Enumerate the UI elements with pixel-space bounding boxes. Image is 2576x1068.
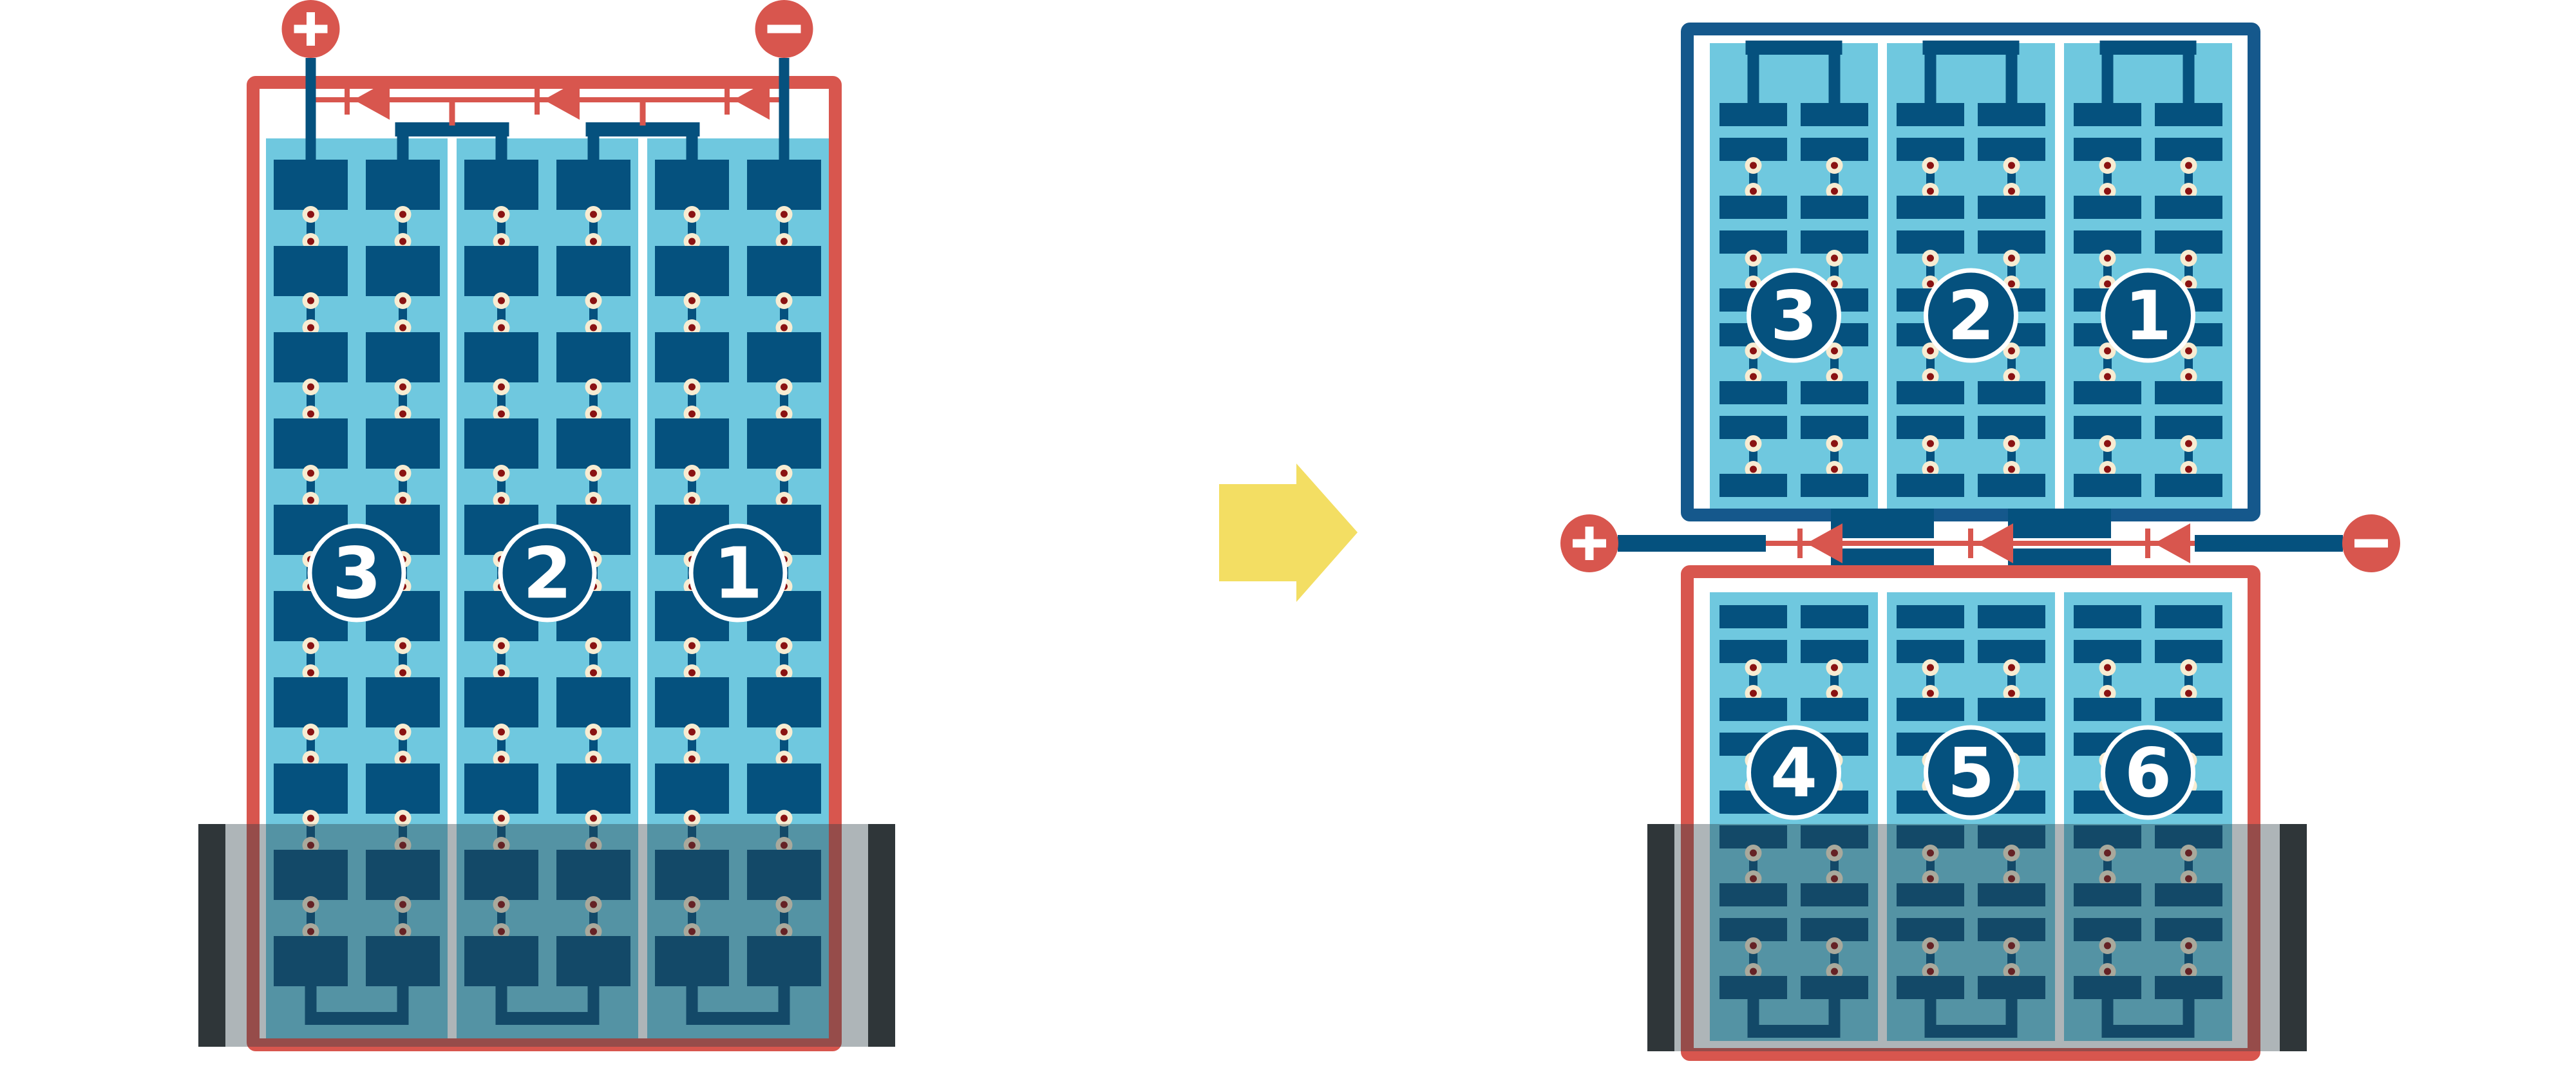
string-number-label: 5 (1947, 734, 1994, 812)
cell (1897, 474, 1964, 497)
joint-dot-core (2008, 348, 2015, 355)
joint-dot-core (2104, 690, 2111, 697)
top-u-connector-bar (1923, 41, 2020, 55)
string-number-label: 4 (1770, 734, 1817, 812)
joint-dot-core (1750, 690, 1757, 697)
flood-group (198, 824, 2307, 1051)
joint-dot-core (498, 411, 505, 418)
joint-dot-core (2185, 373, 2192, 380)
joint-dot-core (688, 756, 696, 763)
string-number-label: 6 (2125, 734, 2172, 812)
cell (464, 677, 538, 727)
transform-arrow-icon (1219, 464, 1358, 602)
cell (747, 246, 821, 296)
joint-dot-core (781, 815, 788, 822)
cell (366, 764, 440, 814)
minus-terminal-icon (2342, 514, 2400, 572)
string-number-label: 1 (2125, 277, 2172, 355)
joint-dot-core (688, 411, 696, 418)
string-rewiring-diagram: 321321456 (0, 0, 2576, 1068)
joint-dot-core (1927, 188, 1934, 195)
cell (1801, 698, 1868, 721)
joint-dot-core (781, 470, 788, 477)
joint-dot-core (1927, 348, 1934, 355)
terminal-post (306, 58, 316, 161)
top-u-connector-leg (1748, 55, 1759, 111)
joint-dot-core (590, 756, 597, 763)
cell (366, 418, 440, 469)
cell (1801, 605, 1868, 628)
top-u-connector-bar (2100, 41, 2197, 55)
joint-dot-core (2185, 255, 2192, 262)
string-number-label: 3 (332, 532, 382, 615)
cell (1719, 605, 1787, 628)
minus-glyph-bar (2354, 539, 2388, 548)
joint-dot-core (590, 297, 597, 304)
wire-tick (535, 85, 540, 115)
cell (464, 332, 538, 382)
joint-dot-core (399, 384, 406, 391)
joint-dot-core (781, 411, 788, 418)
joint-dot-core (1831, 188, 1838, 195)
joint-dot-core (688, 729, 696, 736)
cell (1978, 196, 2045, 219)
joint-dot-core (307, 815, 314, 822)
joint-dot-core (399, 324, 406, 332)
joint-dot-core (307, 642, 314, 650)
joint-dot-core (781, 497, 788, 504)
cell (556, 160, 630, 210)
cell (464, 246, 538, 296)
joint-dot-core (590, 324, 597, 332)
joint-dot-core (2008, 281, 2015, 288)
cell (2155, 196, 2222, 219)
joint-dot-core (1927, 664, 1934, 671)
joint-dot-core (1927, 466, 1934, 473)
cell (1978, 605, 2045, 628)
cell (2074, 605, 2141, 628)
joint-dot-core (590, 411, 597, 418)
string-number-label: 1 (714, 532, 763, 615)
joint-dot-core (781, 670, 788, 677)
joint-dot-core (1831, 162, 1838, 169)
joint-dot-core (307, 297, 314, 304)
joint-dot-core (688, 670, 696, 677)
series-tab-bottom (2008, 548, 2111, 565)
joint-dot-core (1831, 281, 1838, 288)
joint-dot-core (2104, 664, 2111, 671)
flood-water-overlay-right (1647, 824, 2307, 1051)
cell (2074, 381, 2141, 404)
joint-dot-core (498, 324, 505, 332)
cell (274, 677, 348, 727)
joint-dot-core (2104, 255, 2111, 262)
cell (1719, 196, 1787, 219)
joint-dot-core (688, 470, 696, 477)
joint-dot-core (498, 384, 505, 391)
joint-dot-core (1927, 690, 1934, 697)
joint-dot-core (1831, 373, 1838, 380)
joint-dot-core (2104, 281, 2111, 288)
cell (1719, 698, 1787, 721)
joint-dot-core (590, 384, 597, 391)
joint-dot-core (1831, 348, 1838, 355)
joint-dot-core (498, 211, 505, 218)
cell (464, 160, 538, 210)
joint-dot-core (688, 324, 696, 332)
top-u-connector-leg (1925, 55, 1937, 111)
cell (1801, 474, 1868, 497)
top-u-connector-leg (2006, 55, 2018, 111)
cell (274, 418, 348, 469)
joint-dot-core (781, 211, 788, 218)
column-divider (1878, 43, 1887, 509)
cell (747, 764, 821, 814)
joint-dot-core (688, 642, 696, 650)
joint-dot-core (2104, 348, 2111, 355)
joint-dot-core (307, 497, 314, 504)
cell (655, 418, 729, 469)
cell (366, 677, 440, 727)
joint-dot-core (2185, 281, 2192, 288)
current-direction-arrowhead (1977, 523, 2013, 563)
joint-dot-core (781, 642, 788, 650)
series-tab-bottom (1831, 548, 1934, 565)
joint-dot-core (1927, 281, 1934, 288)
joint-dot-core (2185, 690, 2192, 697)
cell (2074, 196, 2141, 219)
joint-dot-core (781, 238, 788, 245)
joint-dot-core (307, 670, 314, 677)
joint-dot-core (1750, 348, 1757, 355)
joint-dot-core (1750, 440, 1757, 447)
wire-stub (450, 100, 455, 126)
wire-stub (640, 100, 646, 126)
joint-dot-core (399, 297, 406, 304)
cell (274, 160, 348, 210)
joint-dot-core (307, 729, 314, 736)
cell (1897, 196, 1964, 219)
joint-dot-core (2185, 440, 2192, 447)
joint-dot-core (781, 729, 788, 736)
joint-dot-core (399, 815, 406, 822)
joint-dot-core (688, 238, 696, 245)
joint-dot-core (399, 238, 406, 245)
top-u-connector-bar (1746, 41, 1842, 55)
joint-dot-core (1750, 373, 1757, 380)
wire-tick (2145, 529, 2150, 558)
cell (556, 677, 630, 727)
cell (1978, 381, 2045, 404)
cell (747, 160, 821, 210)
cell (556, 418, 630, 469)
joint-dot-core (590, 729, 597, 736)
joint-dot-core (1750, 255, 1757, 262)
right-top-panel-group: 321 (1687, 29, 2254, 515)
plus-glyph-bar (307, 12, 315, 46)
top-series-bridge-leg (588, 136, 600, 162)
cell (1719, 474, 1787, 497)
cell (556, 332, 630, 382)
joint-dot-core (1927, 162, 1934, 169)
cell (464, 764, 538, 814)
joint-dot-core (399, 756, 406, 763)
cell (274, 764, 348, 814)
joint-dot-core (688, 211, 696, 218)
cell (2155, 698, 2222, 721)
joint-dot-core (399, 729, 406, 736)
cell (655, 246, 729, 296)
joint-dot-core (781, 324, 788, 332)
joint-dot-core (1831, 255, 1838, 262)
flood-water-overlay-left (198, 824, 895, 1047)
cell (1801, 196, 1868, 219)
joint-dot-core (399, 411, 406, 418)
joint-dot-core (2008, 664, 2015, 671)
joint-dot-core (307, 211, 314, 218)
string-number-label: 2 (1947, 277, 1994, 355)
top-u-connector-leg (2183, 55, 2195, 111)
top-u-connector-leg (1829, 55, 1841, 111)
joint-dot-core (1750, 281, 1757, 288)
joint-dot-core (307, 470, 314, 477)
joint-dot-core (307, 324, 314, 332)
joint-dot-core (2185, 188, 2192, 195)
diagram-canvas: 321321456 (0, 0, 2576, 1068)
joint-dot-core (307, 384, 314, 391)
terminal-post (779, 58, 790, 161)
top-u-connector-leg (2102, 55, 2114, 111)
joint-dot-core (781, 384, 788, 391)
cell (747, 332, 821, 382)
joint-dot-core (2104, 188, 2111, 195)
plus-glyph-bar (1586, 527, 1594, 560)
top-series-bridge-leg (397, 136, 409, 162)
string-number-label: 3 (1770, 277, 1817, 355)
joint-dot-core (498, 756, 505, 763)
cell (556, 764, 630, 814)
joint-dot-core (498, 238, 505, 245)
joint-dot-core (590, 497, 597, 504)
cell (1978, 474, 2045, 497)
joint-dot-core (781, 297, 788, 304)
cell (1801, 381, 1868, 404)
terminal-bus-bar (2195, 535, 2343, 552)
joint-dot-core (1927, 373, 1934, 380)
joint-dot-core (498, 670, 505, 677)
cell (747, 677, 821, 727)
joint-dot-core (399, 497, 406, 504)
joint-dot-core (498, 497, 505, 504)
cell (556, 246, 630, 296)
joint-dot-core (307, 238, 314, 245)
joint-dot-core (2008, 162, 2015, 169)
joint-dot-core (1831, 690, 1838, 697)
joint-dot-core (2008, 373, 2015, 380)
series-tab-top (1831, 509, 1934, 538)
wire-tick (1968, 529, 1973, 558)
joint-dot-core (2104, 440, 2111, 447)
joint-dot-core (399, 670, 406, 677)
joint-dot-core (1750, 188, 1757, 195)
cell (1897, 698, 1964, 721)
cell (464, 418, 538, 469)
cell (1719, 381, 1787, 404)
joint-dot-core (498, 642, 505, 650)
joint-dot-core (399, 211, 406, 218)
joint-dot-core (399, 642, 406, 650)
cell (655, 332, 729, 382)
joint-dot-core (2008, 255, 2015, 262)
joint-dot-core (2104, 162, 2111, 169)
cell (2155, 605, 2222, 628)
top-series-bridge-leg (496, 136, 507, 162)
joint-dot-core (590, 211, 597, 218)
cell (2074, 474, 2141, 497)
cell (274, 332, 348, 382)
cell (655, 677, 729, 727)
string-number-label: 2 (523, 532, 573, 615)
joint-dot-core (2185, 466, 2192, 473)
plus-terminal-icon (1560, 514, 1618, 572)
joint-dot-core (498, 815, 505, 822)
joint-dot-core (1750, 162, 1757, 169)
joint-dot-core (1927, 440, 1934, 447)
joint-dot-core (2185, 162, 2192, 169)
joint-dot-core (2185, 664, 2192, 671)
joint-dot-core (688, 297, 696, 304)
cell (1978, 698, 2045, 721)
joint-dot-core (307, 411, 314, 418)
cell (2155, 381, 2222, 404)
wire-tick (724, 85, 730, 115)
joint-dot-core (2104, 373, 2111, 380)
joint-dot-core (1750, 664, 1757, 671)
plus-terminal-icon (282, 0, 340, 58)
joint-dot-core (1831, 466, 1838, 473)
joint-dot-core (590, 642, 597, 650)
minus-terminal-icon (755, 0, 813, 58)
joint-dot-core (2104, 466, 2111, 473)
cell (366, 160, 440, 210)
joint-dot-core (399, 470, 406, 477)
terminal-bus-bar (1618, 535, 1766, 552)
current-direction-arrowhead (2154, 523, 2190, 563)
joint-dot-core (307, 756, 314, 763)
joint-dot-core (1927, 255, 1934, 262)
joint-dot-core (2008, 466, 2015, 473)
cell (366, 246, 440, 296)
cell (274, 246, 348, 296)
top-series-bridge-leg (687, 136, 698, 162)
column-divider (2055, 43, 2064, 509)
joint-dot-core (498, 297, 505, 304)
cell (655, 160, 729, 210)
joint-dot-core (590, 670, 597, 677)
joint-dot-core (781, 756, 788, 763)
cell (366, 332, 440, 382)
joint-dot-core (688, 497, 696, 504)
joint-dot-core (498, 729, 505, 736)
joint-dot-core (590, 238, 597, 245)
joint-dot-core (2008, 440, 2015, 447)
cell (2155, 474, 2222, 497)
cell (1897, 381, 1964, 404)
minus-glyph-bar (768, 25, 801, 33)
joint-dot-core (1750, 466, 1757, 473)
joint-dot-core (688, 384, 696, 391)
joint-dot-core (1831, 664, 1838, 671)
cell (655, 764, 729, 814)
joint-dot-core (590, 815, 597, 822)
joint-dot-core (2008, 188, 2015, 195)
joint-dot-core (590, 470, 597, 477)
wire-tick (1797, 529, 1803, 558)
joint-dot-core (688, 815, 696, 822)
cell (747, 418, 821, 469)
joint-dot-core (2008, 690, 2015, 697)
joint-dot-core (2185, 348, 2192, 355)
wire-tick (345, 85, 350, 115)
current-direction-arrowhead (1806, 523, 1842, 563)
cell (2074, 698, 2141, 721)
joint-dot-core (1831, 440, 1838, 447)
cell (1897, 605, 1964, 628)
joint-dot-core (498, 470, 505, 477)
series-tab-top (2008, 509, 2111, 538)
